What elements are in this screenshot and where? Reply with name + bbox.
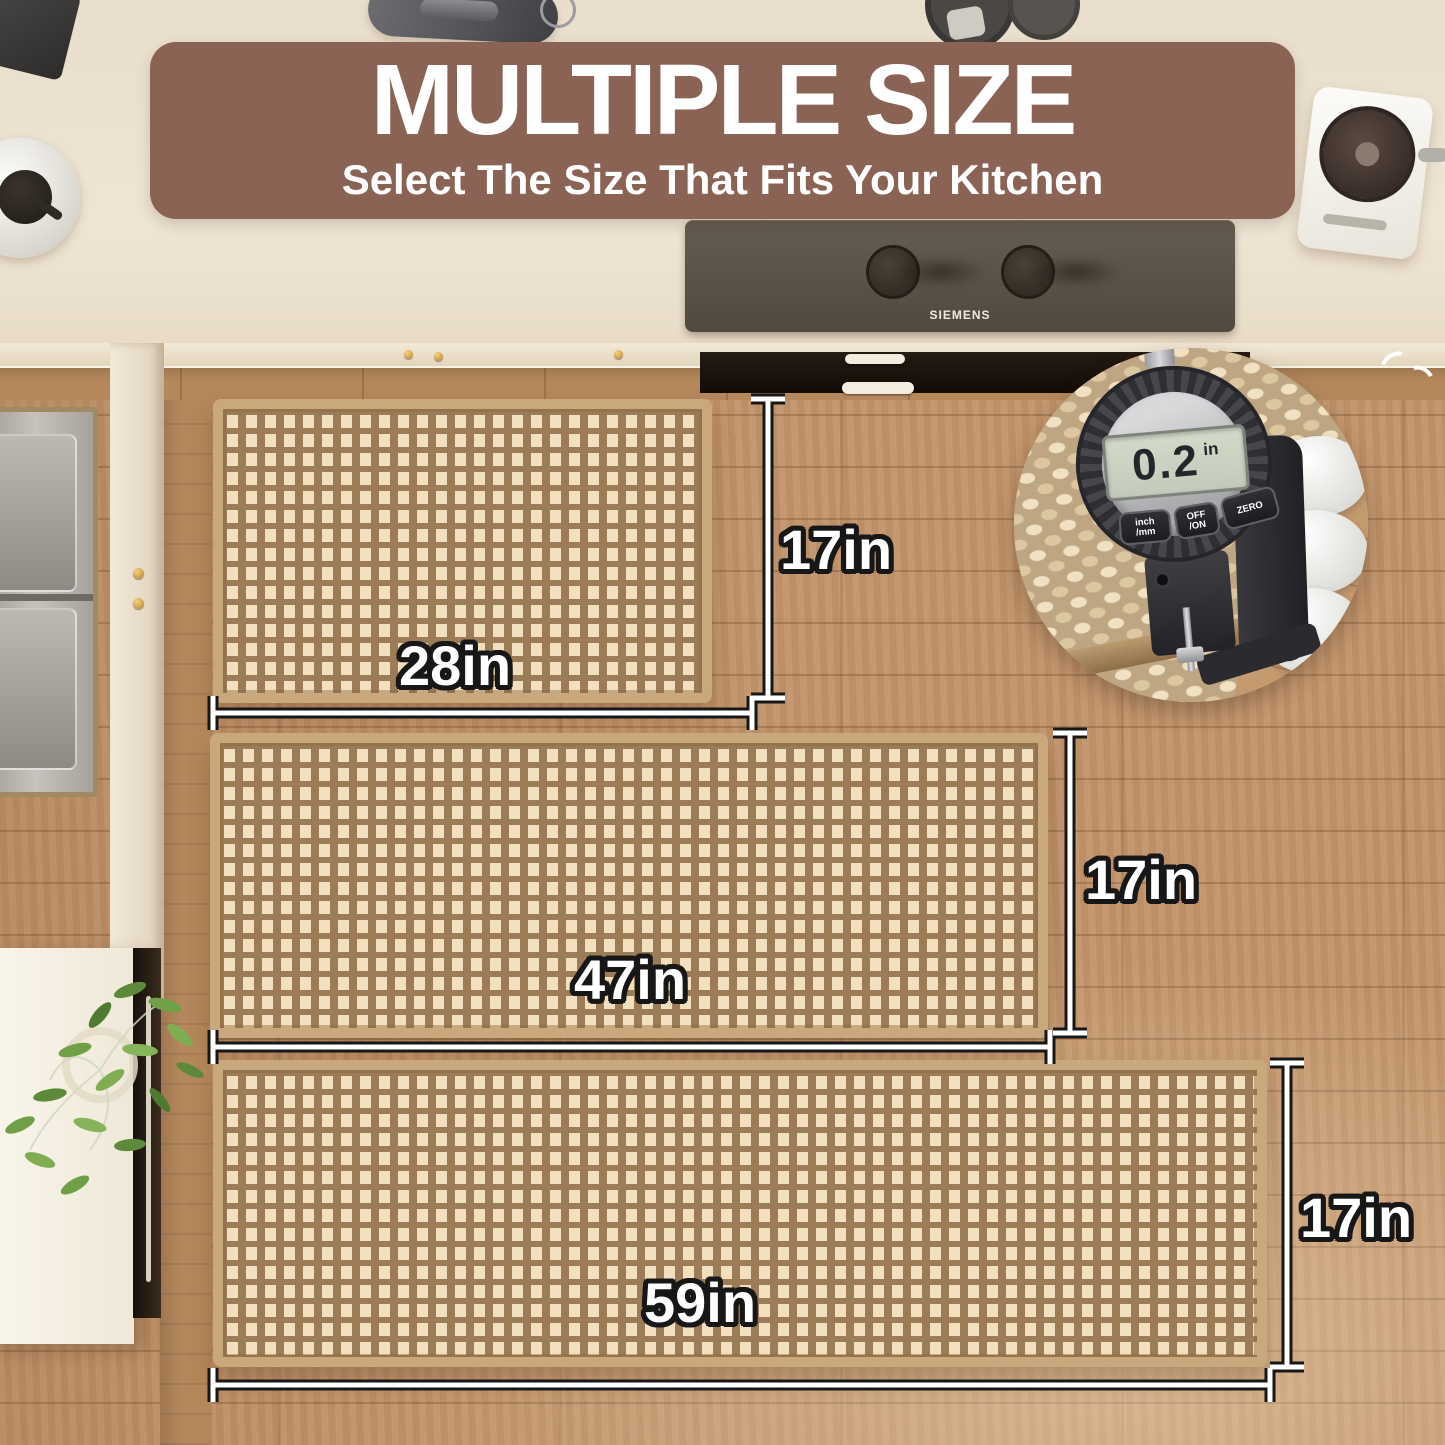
gauge-button-inch-mm: inch /mm [1118,508,1173,545]
cabinet-knob [434,352,443,361]
thickness-gauge: 0.2 in inch /mm OFF /ON ZERO [1014,348,1368,702]
page-title: MULTIPLE SIZE [371,53,1075,148]
gauge-spindle-nut [1176,646,1204,663]
wood-floor-vertical-strip [160,343,212,1445]
title-banner: MULTIPLE SIZE Select The Size That Fits … [150,42,1295,219]
kettle [1296,85,1435,260]
thickness-gauge-inset: 0.2 in inch /mm OFF /ON ZERO [1014,348,1368,702]
rug-small-height-label: 17in [780,522,892,578]
cooktop-brand: SIEMENS [929,308,990,322]
rug-large-width-label: 59in [644,1275,756,1331]
appliance-panel [0,608,77,770]
product-infographic: SIEMENS [0,0,1445,1445]
drawer-handle [842,382,914,394]
rug-large-height-label: 17in [1300,1190,1412,1246]
cabinet-knob [133,568,144,579]
kettle-handle [1418,148,1445,162]
kettle-lid [1314,101,1421,208]
gauge-button-off-on: OFF /ON [1173,501,1222,540]
appliance-panel [0,434,77,592]
cabinet-knob [404,350,413,359]
kettle-lid-knob [1354,141,1381,168]
kettle-slot [1323,213,1388,231]
cup [946,5,987,41]
coffee-machine-top [0,170,52,224]
gauge-lcd: 0.2 in [1101,424,1250,502]
gauge-unit: in [1202,439,1219,460]
rug-medium-height-label: 17in [1085,852,1197,908]
cabinet-column [110,343,164,1005]
rug-small-width-label: 28in [399,638,511,694]
iron-handle [420,0,499,22]
page-subtitle: Select The Size That Fits Your Kitchen [342,156,1104,204]
gauge-reading: 0.2 [1130,439,1201,489]
drawer-handle [845,354,905,364]
cooktop: SIEMENS [685,220,1235,332]
rug-medium-width-label: 47in [574,952,686,1008]
stainless-appliance [0,407,98,797]
cooktop-knob [866,245,920,299]
cabinet-knob [614,350,623,359]
cabinet-knob [133,598,144,609]
cooktop-knob [1001,245,1055,299]
appliance-divider [0,594,93,601]
